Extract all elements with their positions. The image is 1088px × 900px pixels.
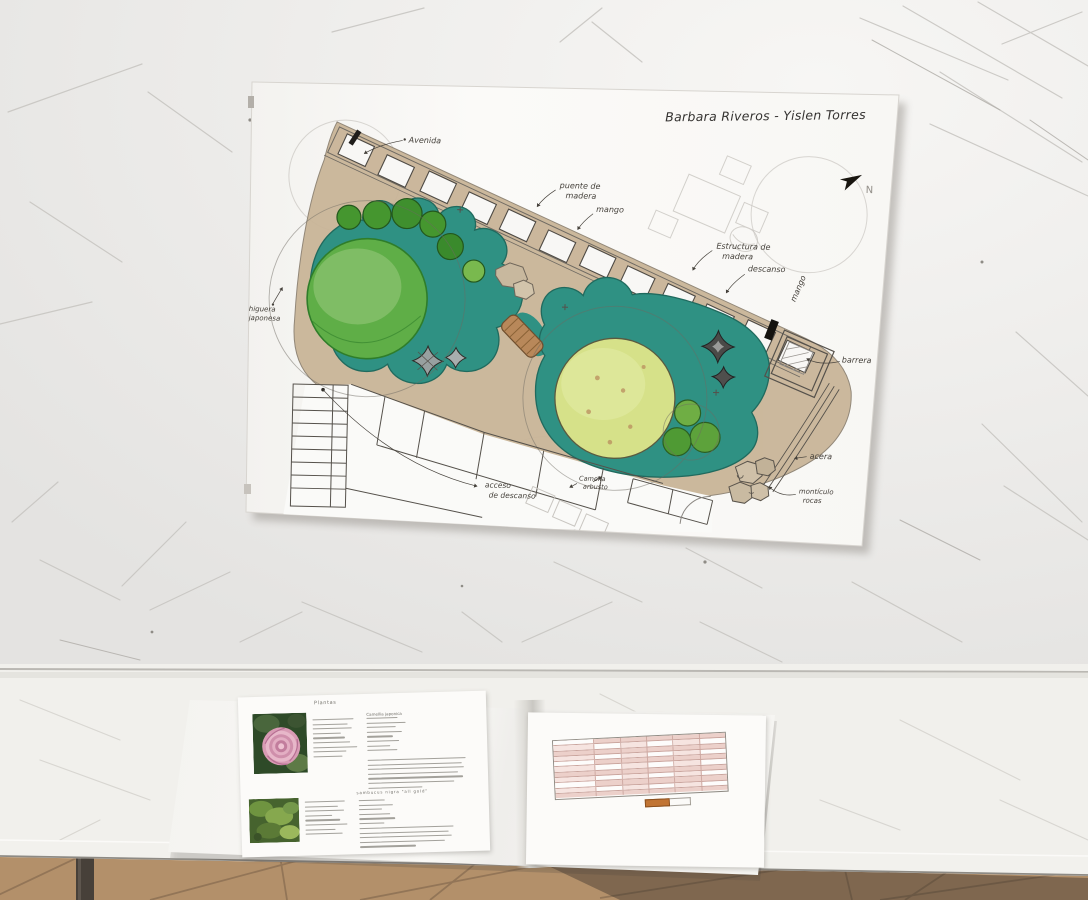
plant2-description	[360, 826, 455, 852]
svg-text:Estructura de: Estructura de	[716, 242, 770, 252]
svg-text:madera: madera	[565, 191, 596, 201]
plant1-field-values	[366, 716, 419, 754]
foliage-photo	[249, 798, 300, 843]
datasheet-heading: Plantas	[314, 700, 337, 707]
tape-mark-top	[248, 96, 254, 108]
svg-text:mango: mango	[596, 205, 624, 215]
svg-text:acceso: acceso	[485, 480, 512, 490]
svg-text:arbusto: arbusto	[583, 483, 608, 492]
svg-text:acera: acera	[810, 452, 833, 462]
svg-text:descanso: descanso	[748, 264, 786, 274]
tape-mark-bottom	[244, 484, 251, 494]
plant1-field-labels	[312, 718, 359, 761]
svg-text:japonesa: japonesa	[248, 314, 281, 323]
plant2-field-values	[359, 799, 408, 828]
plant1-name: Camellia japonica	[366, 711, 402, 717]
svg-text:rocas: rocas	[803, 497, 822, 505]
plant2-name: sambucus nigra "all gold"	[356, 788, 428, 795]
north-letter: N	[866, 185, 874, 196]
svg-text:madera: madera	[722, 252, 753, 262]
plan-title: Barbara Riveros - Yislen Torres	[665, 107, 866, 124]
total-highlight-cell	[645, 798, 671, 807]
svg-text:montículo: montículo	[799, 488, 834, 497]
tree-canopy-green	[306, 237, 429, 360]
budget-total-row	[645, 797, 691, 805]
photo-scene: Avenida puente de madera mango Estructur…	[0, 0, 1088, 900]
budget-table-page	[526, 712, 766, 867]
svg-text:de descanso: de descanso	[489, 490, 537, 500]
svg-text:Avenida: Avenida	[408, 136, 442, 146]
plant-datasheet-page: Plantas Camellia japonica	[238, 691, 490, 858]
table-leg	[76, 852, 94, 900]
camellia-photo	[252, 713, 308, 774]
svg-text:puente de: puente de	[559, 181, 601, 191]
plant1-description	[368, 757, 467, 792]
wall-and-plan: Avenida puente de madera mango Estructur…	[0, 0, 1088, 690]
svg-text:barrera: barrera	[842, 355, 872, 365]
total-value-cell	[670, 797, 691, 806]
plant2-field-labels	[305, 800, 352, 838]
svg-text:higuera: higuera	[249, 305, 276, 314]
svg-text:Barbara Riveros - Yislen Torre: Barbara Riveros - Yislen Torres	[665, 107, 866, 124]
budget-table	[552, 732, 729, 800]
